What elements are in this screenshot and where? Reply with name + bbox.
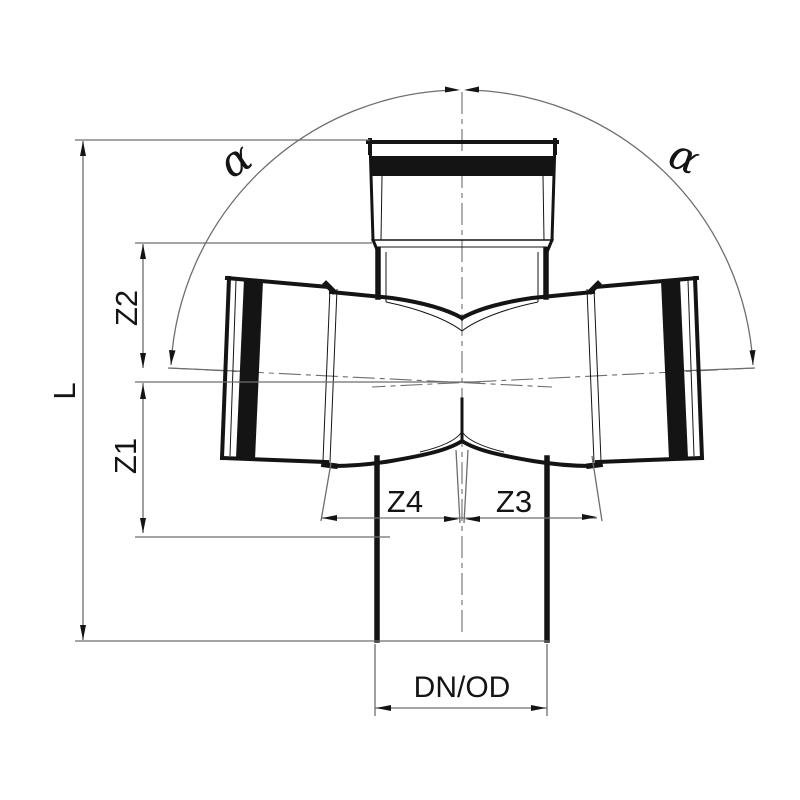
left-branch-socket [222,278,462,466]
arrowhead [376,705,391,711]
arrowhead [140,384,146,399]
arrowhead [169,350,176,365]
arrowhead [140,518,146,533]
fitting-diagram: L Z2 Z1 Z4 Z3 DN/OD α α [0,0,800,800]
right-branch-pipe-top [462,292,593,318]
right-angle-label: α [662,129,707,185]
Z3-label: Z3 [496,484,532,519]
arrowhead [444,516,459,522]
dimension-DN-OD: DN/OD [375,644,547,716]
arrowhead [582,514,597,520]
right-angle-arc [467,90,753,365]
arrowhead [750,350,756,365]
right-socket-mouth-inner-line [688,280,694,456]
left-socket-mouth [222,278,229,458]
L-label: L [47,382,82,399]
left-socket-bottom [222,458,327,462]
Z4-left-extension-line [321,463,331,521]
arrowhead [80,141,86,156]
right-branch-socket [462,278,702,466]
arrowhead [465,516,480,522]
technical-drawing-canvas: L Z2 Z1 Z4 Z3 DN/OD α α [0,0,800,800]
Z4-label: Z4 [387,484,423,519]
right-socket-top [596,278,697,287]
arrowhead [140,244,146,259]
right-socket-shoulder-lines [587,288,601,462]
left-angle-arc [171,90,457,365]
left-socket-shoulder-lines [323,288,337,462]
left-socket-mouth-inner-line [230,280,236,456]
arrowhead [531,705,546,711]
right-socket-gasket-band [661,279,688,460]
dimension-L: L [47,140,549,641]
right-socket-bottom [597,458,702,462]
left-socket-gasket-band [236,279,263,460]
arrowhead [464,87,479,93]
arrowhead [80,625,86,640]
left-socket-top [227,278,328,287]
left-branch-pipe-top [331,292,462,318]
Z2-label: Z2 [109,290,144,326]
right-socket-mouth [695,278,702,458]
arrowhead [445,87,460,93]
dimension-Z2: Z2 [109,243,372,368]
arrowhead [140,353,146,368]
top-socket-gasket-band [371,156,554,176]
DN-OD-label: DN/OD [414,671,511,704]
Z1-label: Z1 [108,438,143,474]
arrowhead [322,515,337,521]
